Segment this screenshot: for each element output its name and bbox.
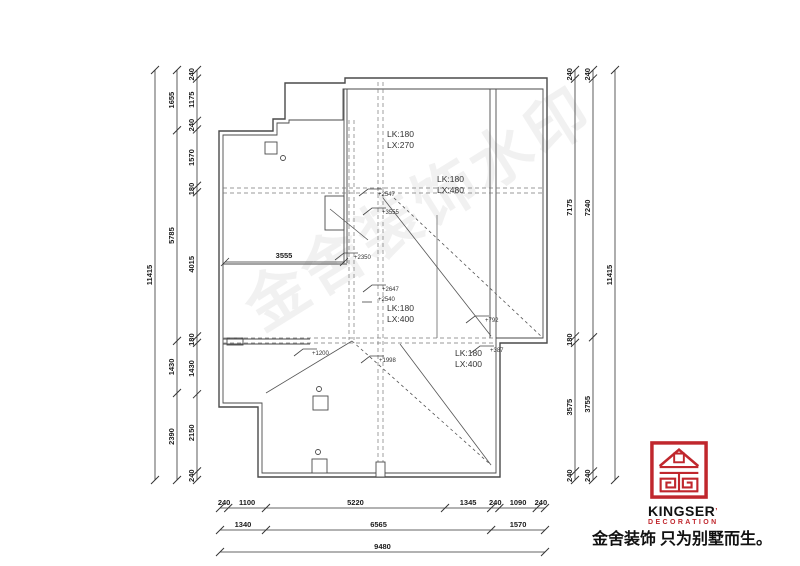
dim-label: 1175 (187, 92, 196, 108)
dim-label: 1090 (510, 498, 527, 507)
dim-label: 240 (535, 498, 548, 507)
level-label: +792 (485, 318, 499, 324)
dim-label: 180 (565, 333, 574, 346)
dim-label: 1655 (167, 92, 176, 109)
small-outlet (317, 387, 322, 392)
dim-label: 240 (565, 469, 574, 482)
brand-name: KINGSER’ (648, 505, 778, 518)
dim-label: 240 (187, 119, 196, 132)
beam-label: LX:400 (387, 314, 414, 324)
dim-label: 3755 (583, 396, 592, 413)
junction-box (312, 459, 327, 473)
level-label: +1998 (379, 358, 397, 364)
interior-walls (223, 89, 496, 345)
dim-label: 1100 (239, 498, 255, 507)
dim-label: 7240 (583, 200, 592, 217)
company-logo: KINGSER’ DECORATION (648, 441, 778, 527)
brand-slogan: 金舍装饰 只为别墅而生。 (592, 525, 792, 549)
dim-label: 1345 (460, 498, 477, 507)
junction-box (313, 396, 328, 410)
level-label: +2350 (354, 255, 372, 261)
dim-label: 11415 (145, 265, 154, 285)
dim-label: 11415 (605, 265, 614, 285)
dim-label: 240 (187, 68, 196, 81)
level-label: +2547 (378, 192, 396, 198)
level-label: +2647 (382, 287, 400, 293)
junction-box (265, 142, 277, 154)
dim-label: 180 (187, 333, 196, 346)
beam-label: LK:180 (387, 303, 414, 313)
dim-label: 3575 (565, 399, 574, 416)
dim-label: 240 (218, 498, 231, 507)
outer-wall (219, 78, 547, 477)
beam-label: LX:400 (455, 359, 482, 369)
beam-label: LX:480 (437, 185, 464, 195)
small-outlet (316, 450, 321, 455)
level-label: +3555 (382, 210, 400, 216)
dim-label: 5785 (167, 227, 176, 244)
dim-label: 1570 (187, 149, 196, 166)
beam-label: LK:180 (437, 174, 464, 184)
kingser-seal-icon (650, 441, 708, 499)
beam-label: LX:270 (387, 140, 414, 150)
roof-diagonals (266, 198, 543, 465)
dim-label: 5220 (347, 498, 364, 507)
dim-label: 240 (583, 469, 592, 482)
dim-label: 240 (489, 498, 502, 507)
beam-label: LK:180 (387, 129, 414, 139)
dim-label: 7175 (565, 199, 574, 216)
level-label: +1200 (312, 351, 330, 357)
level-label: +387 (490, 348, 504, 354)
trademark-icon: ’ (715, 507, 718, 516)
beam-labels: LK:180 LX:270 LK:180 LX:480 LK:180 LX:40… (387, 129, 482, 369)
dim-label: 240 (565, 68, 574, 81)
dimension-chains: 1141516555785143023902401175240157018040… (145, 66, 619, 556)
dim-label: 240 (187, 469, 196, 482)
dim-label: 240 (583, 68, 592, 81)
wall-notch (376, 462, 385, 477)
fixture-symbols (265, 142, 385, 477)
dim-label: 3555 (276, 251, 293, 260)
dim-label: 4015 (187, 256, 196, 273)
dim-label: 1570 (510, 520, 527, 529)
beam-lines (223, 82, 543, 477)
plan-outline (219, 78, 547, 477)
dim-label: 180 (187, 183, 196, 196)
dim-label: 2150 (187, 424, 196, 441)
dim-label: 6565 (370, 520, 387, 529)
dim-label: 1430 (167, 359, 176, 376)
dim-label: 1430 (187, 360, 196, 377)
small-outlet (281, 156, 286, 161)
dim-label: 1340 (235, 520, 252, 529)
beam-label: LK:180 (455, 348, 482, 358)
dim-label: 9480 (374, 542, 391, 551)
dim-label: 2390 (167, 428, 176, 445)
